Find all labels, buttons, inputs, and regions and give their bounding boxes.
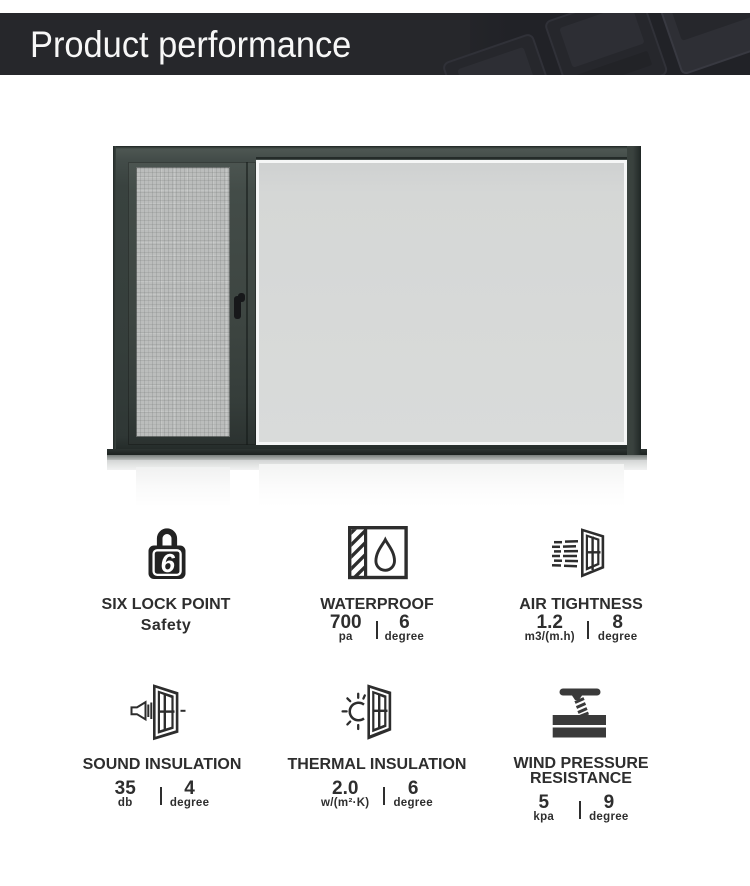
- svg-text:6: 6: [160, 548, 175, 578]
